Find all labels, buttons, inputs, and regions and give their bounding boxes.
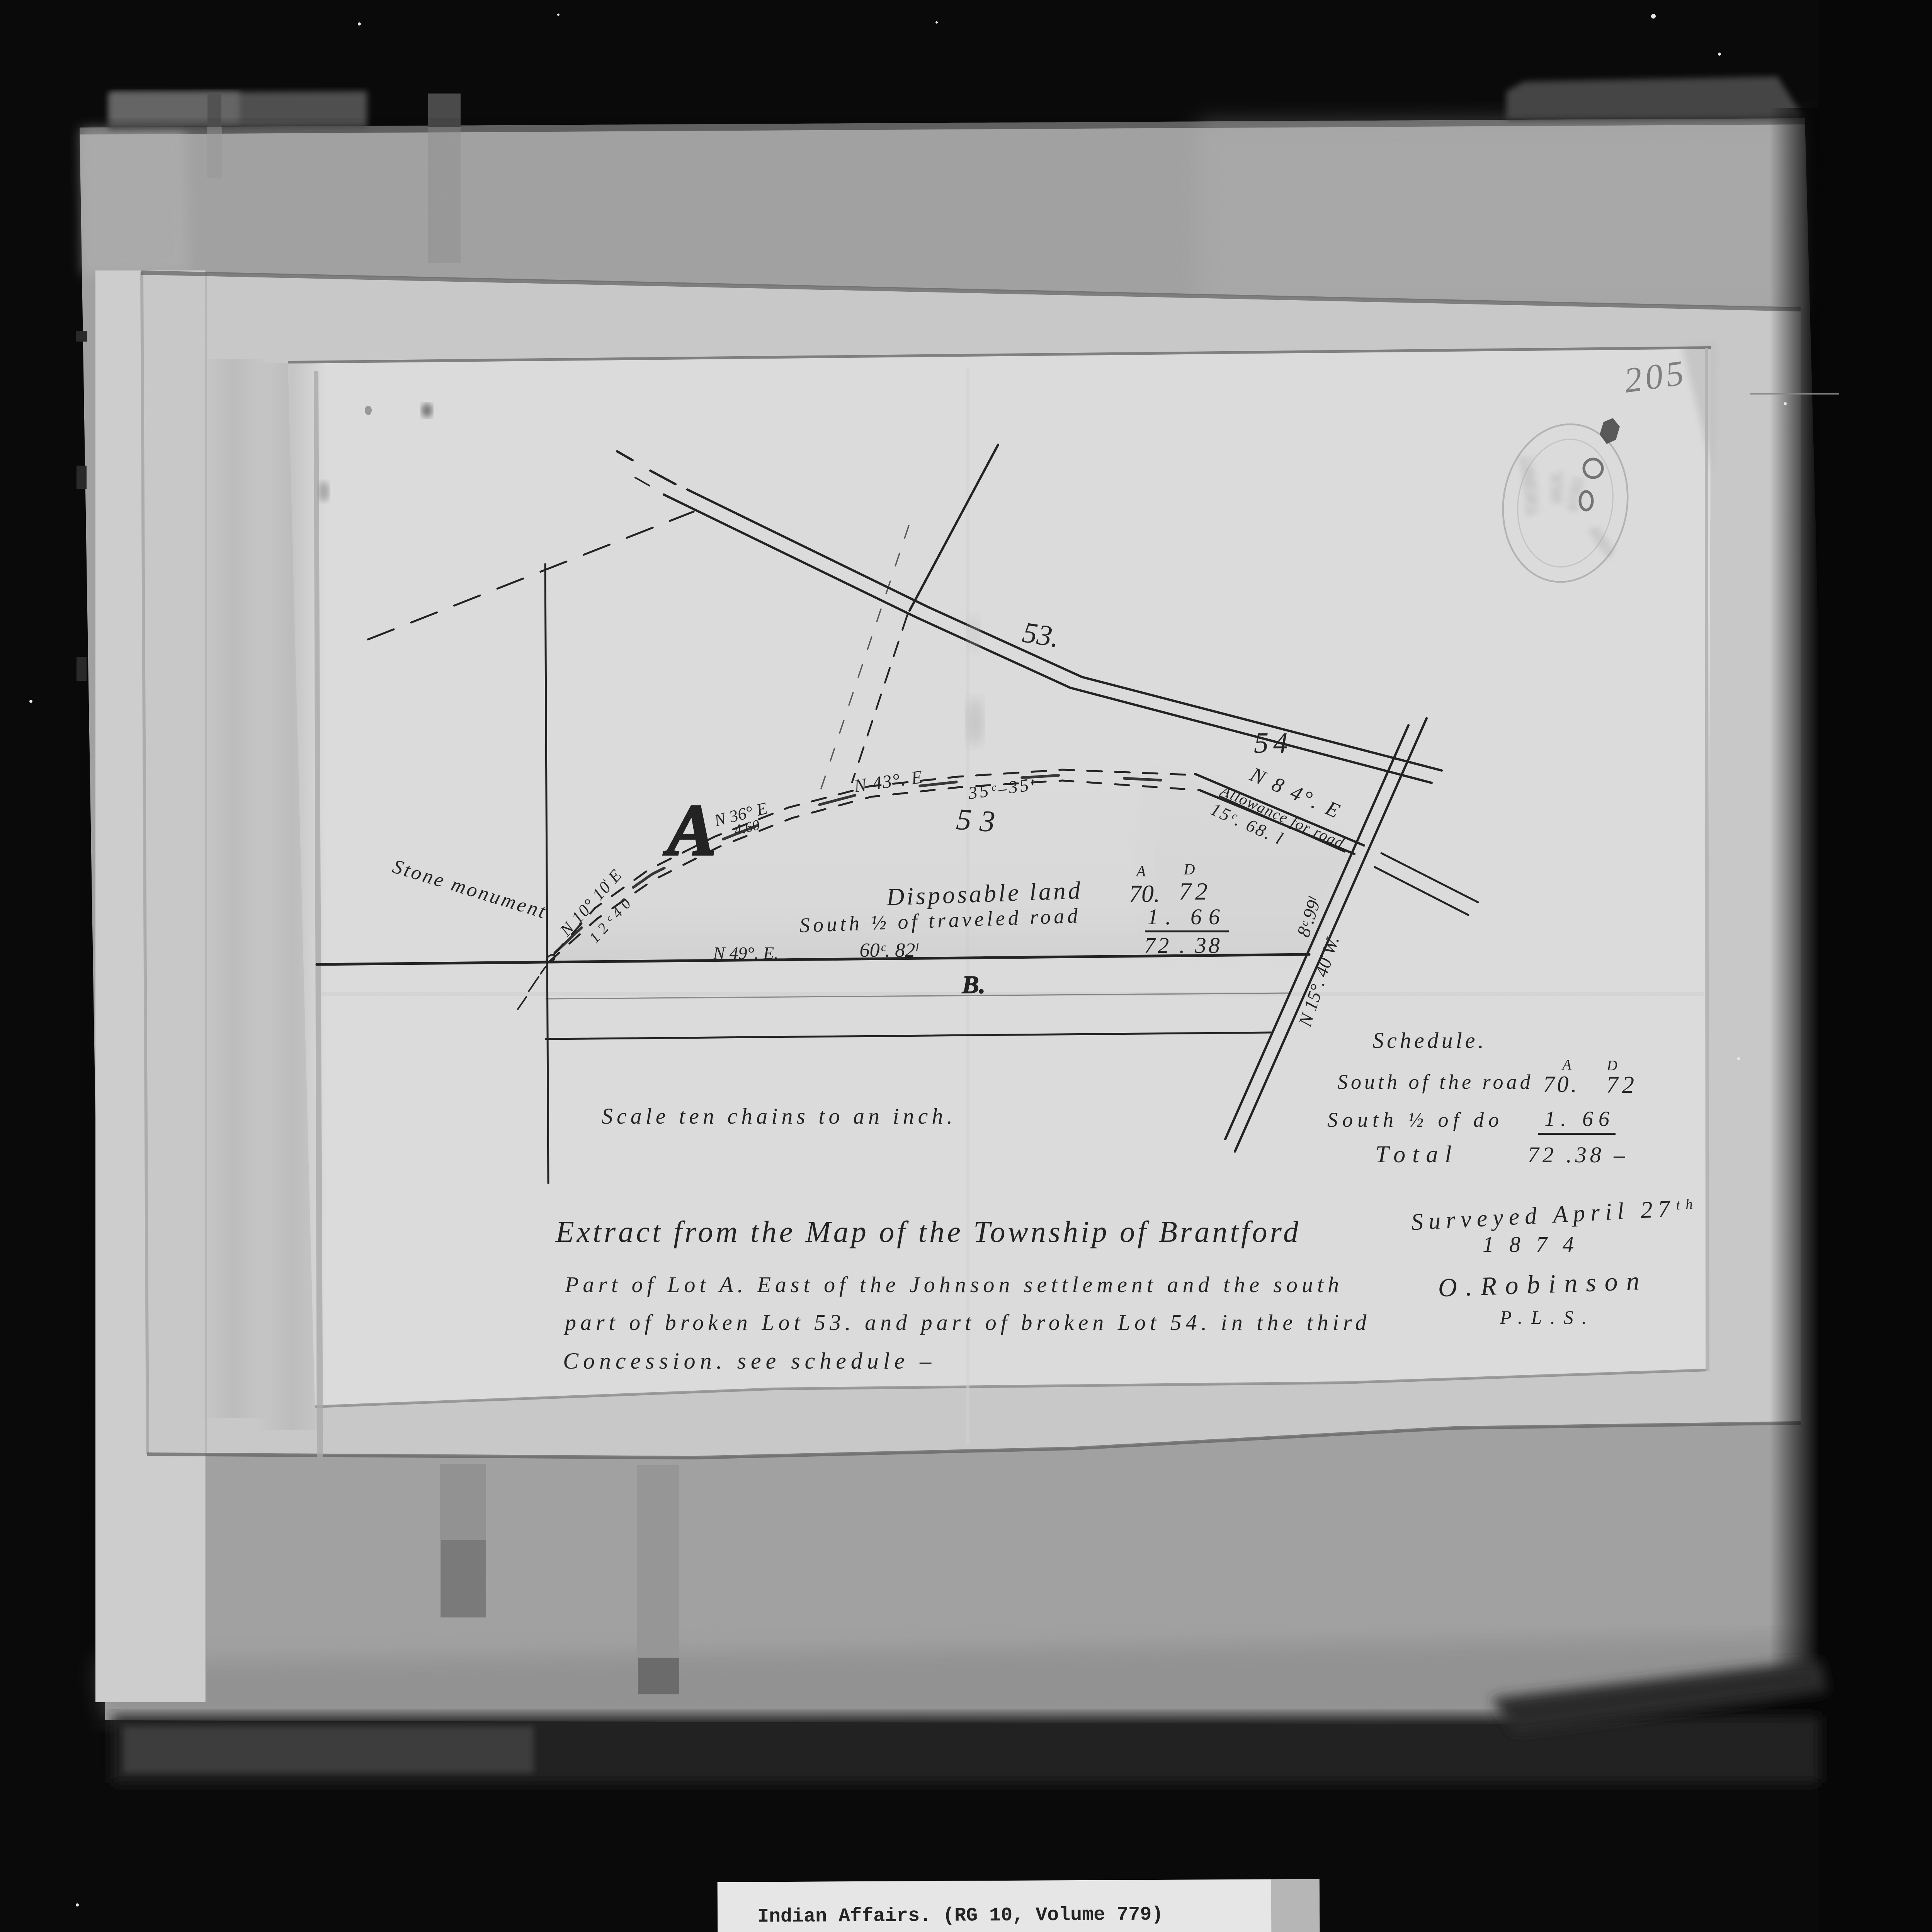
svg-text:D: D	[1184, 861, 1195, 878]
svg-text:53.: 53.	[1020, 616, 1062, 654]
svg-text:Scale ten chains to an inch.: Scale ten chains to an inch.	[602, 1104, 956, 1129]
svg-text:South ½ of do: South ½ of do	[1327, 1108, 1503, 1131]
svg-text:72 .38 –: 72 .38 –	[1528, 1142, 1629, 1167]
svg-text:Total: Total	[1375, 1141, 1458, 1168]
svg-text:Extract from the Map of the To: Extract from the Map of the Township of …	[555, 1215, 1301, 1248]
svg-text:Indian Affairs. (RG 10, Volume: Indian Affairs. (RG 10, Volume 779)	[757, 1904, 1163, 1928]
svg-text:60ᶜ. 82ˡ: 60ᶜ. 82ˡ	[860, 939, 919, 961]
svg-text:53: 53	[955, 802, 1005, 839]
svg-text:JUN: JUN	[1548, 471, 1566, 503]
svg-text:1. 66: 1. 66	[1147, 904, 1227, 929]
svg-text:South of the road: South of the road	[1337, 1070, 1534, 1094]
svg-text:Concession. see schedule –: Concession. see schedule –	[563, 1348, 936, 1374]
svg-text:N 49°. E.: N 49°. E.	[713, 943, 778, 963]
svg-text:D: D	[1606, 1058, 1617, 1074]
svg-text:B.: B.	[962, 971, 986, 999]
svg-text:A: A	[1135, 862, 1146, 880]
svg-text:P.L.S.: P.L.S.	[1500, 1306, 1595, 1328]
svg-text:A: A	[663, 790, 716, 871]
svg-text:A: A	[1561, 1057, 1571, 1073]
svg-text:72 . 38: 72 . 38	[1144, 933, 1222, 958]
svg-text:70.: 70.	[1543, 1071, 1579, 1097]
svg-text:72: 72	[1179, 878, 1211, 905]
svg-text:72: 72	[1606, 1072, 1638, 1098]
svg-text:1874: 1874	[1483, 1232, 1589, 1257]
svg-text:Part of Lot A. East of the Joh: Part of Lot A. East of the Johnson settl…	[565, 1272, 1343, 1297]
svg-text:part of broken Lot 53. and par: part of broken Lot 53. and part of broke…	[563, 1310, 1371, 1335]
svg-text:Schedule.: Schedule.	[1372, 1028, 1487, 1053]
svg-text:1. 66: 1. 66	[1544, 1107, 1615, 1131]
svg-text:70.: 70.	[1129, 880, 1160, 907]
svg-text:54: 54	[1254, 727, 1293, 759]
